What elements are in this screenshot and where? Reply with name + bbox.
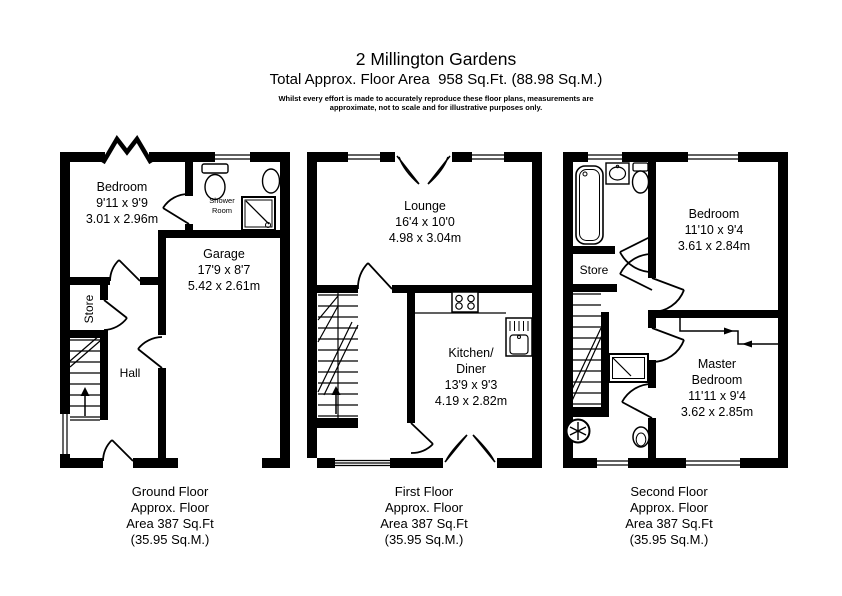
room-label-lounge: Lounge — [404, 199, 446, 213]
door-arc-icon — [110, 260, 140, 281]
second-floor-caption: Second Floor Approx. Floor Area 387 Sq.F… — [584, 484, 754, 548]
sink-icon — [263, 169, 280, 193]
room-label-store: Store — [82, 294, 96, 323]
floorplan-page: 2 Millington Gardens Total Approx. Floor… — [0, 0, 842, 596]
window-icon — [348, 152, 380, 162]
caption-line: Approx. Floor — [584, 500, 754, 516]
ground-floor-plan: Bedroom 9'11 x 9'9 3.01 x 2.96m Shower R… — [60, 139, 290, 468]
shower-enclosure-icon — [609, 354, 648, 382]
room-label-master-bedroom: Master — [698, 357, 736, 371]
window-icon — [335, 458, 390, 468]
room-label-kitchen-diner: Diner — [456, 362, 486, 376]
front-door-arc-icon — [103, 440, 133, 461]
room-dim-metric: 3.01 x 2.96m — [86, 212, 158, 226]
room-dim-metric: 5.42 x 2.61m — [188, 279, 260, 293]
door-arc-icon — [652, 278, 684, 312]
door-arc-icon — [622, 384, 652, 418]
room-label-bedroom: Bedroom — [689, 207, 740, 221]
room-label-master-bedroom: Bedroom — [692, 373, 743, 387]
window-icon — [472, 152, 504, 162]
door-arc-icon — [411, 423, 433, 453]
stairs-icon — [70, 335, 100, 420]
hob-icon — [452, 292, 478, 312]
sliding-wardrobe-icon — [680, 318, 778, 348]
ground-floor-caption: Ground Floor Approx. Floor Area 387 Sq.F… — [85, 484, 255, 548]
room-dim-metric: 4.19 x 2.82m — [435, 394, 507, 408]
caption-line: Approx. Floor — [85, 500, 255, 516]
toilet-icon — [202, 164, 228, 200]
sink-icon — [606, 163, 629, 184]
room-dim-imperial: 17'9 x 8'7 — [198, 263, 251, 277]
door-arc-icon — [104, 300, 127, 330]
door-arc-icon — [138, 337, 162, 368]
door-arc-icon — [358, 263, 392, 289]
window-icon — [588, 152, 622, 162]
toilet-icon — [633, 163, 649, 193]
room-dim-metric: 3.61 x 2.84m — [678, 239, 750, 253]
window-icon — [597, 458, 628, 468]
caption-line: Area 387 Sq.Ft — [85, 516, 255, 532]
caption-line: (35.95 Sq.M.) — [584, 532, 754, 548]
room-label-hall: Hall — [120, 366, 141, 380]
door-arc-icon — [652, 328, 684, 362]
caption-line: Area 387 Sq.Ft — [339, 516, 509, 532]
second-floor-plan: Bedroom 11'10 x 9'4 3.61 x 2.84m Master … — [563, 152, 788, 468]
caption-line: Ground Floor — [85, 484, 255, 500]
room-label-shower-room: Room — [212, 206, 232, 215]
window-icon — [686, 458, 740, 468]
toilet-icon — [633, 427, 649, 447]
room-dim-metric: 4.98 x 3.04m — [389, 231, 461, 245]
room-dim-imperial: 11'10 x 9'4 — [685, 223, 744, 237]
room-label-shower-room: Shower — [209, 196, 235, 205]
room-dim-imperial: 11'11 x 9'4 — [688, 389, 746, 403]
room-dim-imperial: 13'9 x 9'3 — [445, 378, 498, 392]
room-dim-imperial: 16'4 x 10'0 — [395, 215, 455, 229]
french-doors-icon — [397, 156, 450, 184]
caption-line: Second Floor — [584, 484, 754, 500]
window-icon — [215, 152, 250, 162]
room-label-bedroom: Bedroom — [97, 180, 148, 194]
shower-enclosure-icon — [242, 197, 275, 230]
stairs-icon — [318, 293, 358, 418]
bay-window-icon — [104, 139, 150, 161]
caption-line: (35.95 Sq.M.) — [85, 532, 255, 548]
room-dim-metric: 3.62 x 2.85m — [681, 405, 753, 419]
french-doors-icon — [445, 435, 495, 462]
window-icon — [688, 152, 738, 162]
window-icon — [60, 414, 70, 454]
room-label-kitchen-diner: Kitchen/ — [448, 346, 494, 360]
caption-line: Approx. Floor — [339, 500, 509, 516]
extractor-fan-icon — [567, 420, 590, 443]
room-dim-imperial: 9'11 x 9'9 — [96, 196, 148, 210]
room-label-store: Store — [580, 263, 609, 277]
first-floor-caption: First Floor Approx. Floor Area 387 Sq.Ft… — [339, 484, 509, 548]
room-label-garage: Garage — [203, 247, 245, 261]
caption-line: (35.95 Sq.M.) — [339, 532, 509, 548]
caption-line: First Floor — [339, 484, 509, 500]
kitchen-sink-icon — [506, 318, 532, 356]
first-floor-plan: Lounge 16'4 x 10'0 4.98 x 3.04m Kitchen/… — [307, 152, 542, 468]
door-arc-icon — [163, 194, 189, 224]
bath-icon — [576, 166, 603, 244]
caption-line: Area 387 Sq.Ft — [584, 516, 754, 532]
